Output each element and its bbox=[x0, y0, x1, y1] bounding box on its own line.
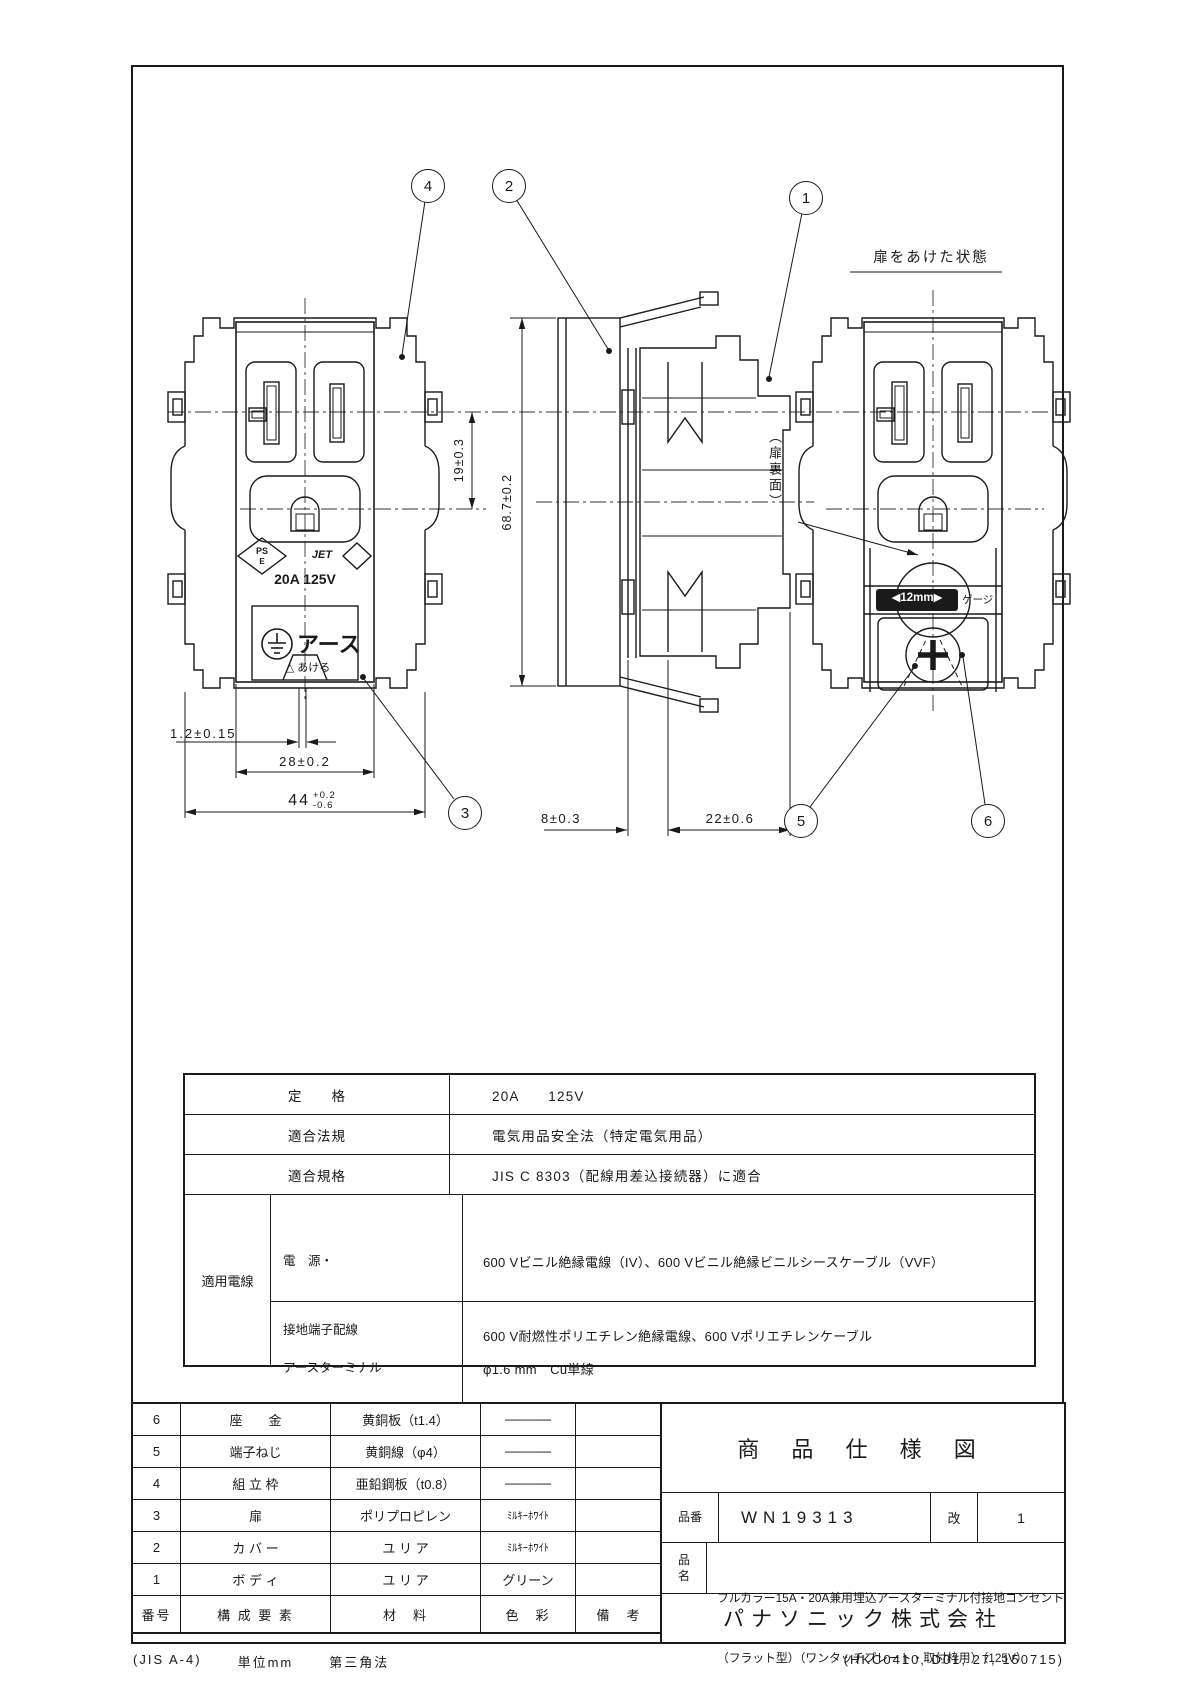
parts-cell-material: ポリプロピレン bbox=[331, 1500, 481, 1532]
callout-1: 1 bbox=[789, 181, 823, 215]
gauge-strip-label: ◀12mm▶ bbox=[876, 592, 958, 605]
door-back-label: （扉裏面） bbox=[766, 430, 781, 552]
parts-cell-component: 座 金 bbox=[181, 1404, 331, 1436]
ps-mark-label: PS bbox=[247, 546, 277, 556]
earth-door-label: アース bbox=[297, 632, 359, 657]
product-name-label: 品名 bbox=[662, 1543, 707, 1593]
callout-5-number: 5 bbox=[797, 813, 805, 830]
parts-cell-material: 亜鉛鋼板（t0.8） bbox=[331, 1468, 481, 1500]
earth-symbol-icon bbox=[262, 629, 292, 659]
parts-cell-material: ユ リ ア bbox=[331, 1564, 481, 1596]
jet-mark-label: JET bbox=[303, 549, 341, 562]
parts-cell-color: ───── bbox=[481, 1404, 576, 1436]
spec-value-standard: JIS C 8303（配線用差込接続器）に適合 bbox=[450, 1155, 1034, 1194]
door-back-leader bbox=[798, 522, 918, 555]
spec-value-rating: 20A 125V bbox=[450, 1075, 1034, 1114]
parts-cell-note bbox=[576, 1404, 662, 1436]
company-name: パナソニック株式会社 bbox=[662, 1594, 1064, 1642]
spec-wires-earth-label-line1: アースターミナル bbox=[283, 1357, 462, 1380]
parts-header-no: 番号 bbox=[133, 1596, 181, 1632]
dim-height: 68.7±0.2 bbox=[500, 455, 514, 549]
parts-cell-component: 扉 bbox=[181, 1500, 331, 1532]
footer-unit: 単位mm bbox=[238, 1652, 294, 1671]
gauge-label: ゲージ bbox=[962, 594, 1004, 606]
parts-cell-no: 2 bbox=[133, 1532, 181, 1564]
rating-marking: 20A 125V bbox=[254, 571, 356, 587]
parts-cell-no: 5 bbox=[133, 1436, 181, 1468]
open-door-view-title: 扉をあけた状態 bbox=[853, 250, 1009, 267]
document-title: 商 品 仕 様 図 bbox=[662, 1404, 1064, 1493]
parts-cell-material: ユ リ ア bbox=[331, 1532, 481, 1564]
dim-frame-width-tolerance: +0.2 -0.6 bbox=[313, 791, 336, 812]
parts-cell-note bbox=[576, 1564, 662, 1596]
dim-body-depth: 22±0.6 bbox=[683, 812, 777, 827]
revision-value: 1 bbox=[978, 1493, 1064, 1542]
parts-cell-note bbox=[576, 1500, 662, 1532]
door-open-hint: △ あける bbox=[272, 662, 344, 675]
parts-cell-color: ───── bbox=[481, 1468, 576, 1500]
callout-leaders bbox=[361, 199, 986, 807]
parts-cell-material: 黄銅板（t1.4） bbox=[331, 1404, 481, 1436]
callout-6: 6 bbox=[971, 804, 1005, 838]
spec-table: 定 格 20A 125V 適合法規 電気用品安全法（特定電気用品） 適合規格 J… bbox=[183, 1073, 1036, 1367]
parts-cell-no: 1 bbox=[133, 1564, 181, 1596]
e-mark-label: E bbox=[252, 557, 272, 566]
parts-cell-component: カ バ ー bbox=[181, 1532, 331, 1564]
spec-label-rating: 定 格 bbox=[185, 1075, 450, 1114]
dim-slot-to-ground: 19±0.3 bbox=[452, 420, 466, 500]
footer-projection: 第三角法 bbox=[329, 1652, 389, 1671]
parts-cell-note bbox=[576, 1468, 662, 1500]
callout-3-number: 3 bbox=[461, 805, 469, 822]
parts-cell-component: 組 立 枠 bbox=[181, 1468, 331, 1500]
spec-wires-power-label: 電 源・ 接地端子配線 bbox=[271, 1195, 463, 1301]
spec-label-law: 適合法規 bbox=[185, 1115, 450, 1154]
parts-header-note: 備 考 bbox=[576, 1596, 662, 1632]
callout-5: 5 bbox=[784, 804, 818, 838]
dim-frame-width: 44 +0.2 -0.6 bbox=[252, 791, 372, 812]
dim-door-offset: 1.2±0.15 bbox=[170, 727, 300, 742]
spec-row-standard: 適合規格 JIS C 8303（配線用差込接続器）に適合 bbox=[185, 1155, 1034, 1195]
spec-wires-column: 電 源・ 接地端子配線 600 Vビニル絶縁電線（IV）、600 Vビニル絶縁ビ… bbox=[271, 1195, 1034, 1365]
parts-cell-no: 4 bbox=[133, 1468, 181, 1500]
spec-wires-power-line: 600 Vビニル絶縁電線（IV）、600 Vビニル絶縁ビニルシースケーブル（VV… bbox=[483, 1251, 1034, 1276]
product-name-row: 品名 フルカラー15A・20A兼用埋込アースターミナル付接地コンセント （フラッ… bbox=[662, 1543, 1064, 1594]
part-number-value: WN19313 bbox=[719, 1493, 930, 1542]
part-number-row: 品番 WN19313 改 1 bbox=[662, 1493, 1064, 1543]
footer-document-code: (HKC0410, D01, 27, 150715) bbox=[844, 1652, 1064, 1667]
parts-cell-component: 端子ねじ bbox=[181, 1436, 331, 1468]
spec-wires-power-lines: 600 Vビニル絶縁電線（IV）、600 Vビニル絶縁ビニルシースケーブル（VV… bbox=[463, 1195, 1034, 1301]
drawing-sheet: 1 2 3 4 5 6 扉をあけた状態 （扉裏面） 19±0.3 68.7±0.… bbox=[0, 0, 1190, 1683]
callout-2: 2 bbox=[492, 169, 526, 203]
views-line-art bbox=[0, 0, 1190, 1010]
parts-cell-no: 6 bbox=[133, 1404, 181, 1436]
part-number-label: 品番 bbox=[662, 1493, 719, 1542]
dim-frame-width-value: 44 bbox=[288, 792, 310, 810]
title-block: 商 品 仕 様 図 品番 WN19313 改 1 品名 フルカラー15A・20A… bbox=[660, 1402, 1066, 1644]
callout-6-number: 6 bbox=[984, 813, 992, 830]
spec-wires-power: 電 源・ 接地端子配線 600 Vビニル絶縁電線（IV）、600 Vビニル絶縁ビ… bbox=[271, 1195, 1034, 1302]
parts-cell-color: ﾐﾙｷｰﾎﾜｲﾄ bbox=[481, 1500, 576, 1532]
spec-wires-power-label-line1: 電 源・ bbox=[283, 1250, 462, 1273]
callout-4: 4 bbox=[411, 169, 445, 203]
cert-diamond-icon bbox=[343, 543, 371, 569]
parts-cell-note bbox=[576, 1436, 662, 1468]
footer-left: (JIS A-4) 単位mm 第三角法 bbox=[133, 1652, 389, 1671]
spec-label-wires: 適用電線 bbox=[185, 1195, 271, 1365]
footer-sheet-size: (JIS A-4) bbox=[133, 1652, 202, 1671]
parts-cell-color: ﾐﾙｷｰﾎﾜｲﾄ bbox=[481, 1532, 576, 1564]
spec-wires-earth-line: φ1.6 mm Cu単線 bbox=[483, 1358, 1034, 1383]
parts-cell-color: ───── bbox=[481, 1436, 576, 1468]
parts-cell-note bbox=[576, 1532, 662, 1564]
spec-row-rating: 定 格 20A 125V bbox=[185, 1075, 1034, 1115]
parts-header-material: 材 料 bbox=[331, 1596, 481, 1632]
parts-cell-material: 黄銅線（φ4） bbox=[331, 1436, 481, 1468]
dim-opening-width: 28±0.2 bbox=[230, 755, 380, 770]
callout-2-number: 2 bbox=[505, 178, 513, 195]
callout-1-number: 1 bbox=[802, 190, 810, 207]
dim-frame-width-lower: -0.6 bbox=[313, 801, 336, 811]
parts-header-color: 色 彩 bbox=[481, 1596, 576, 1632]
spec-value-law: 電気用品安全法（特定電気用品） bbox=[450, 1115, 1034, 1154]
spec-row-wires: 適用電線 電 源・ 接地端子配線 600 Vビニル絶縁電線（IV）、600 Vビ… bbox=[185, 1195, 1034, 1365]
product-name-value: フルカラー15A・20A兼用埋込アースターミナル付接地コンセント （フラット型）… bbox=[707, 1543, 1064, 1593]
parts-cell-no: 3 bbox=[133, 1500, 181, 1532]
spec-label-standard: 適合規格 bbox=[185, 1155, 450, 1194]
parts-table: 6 座 金 黄銅板（t1.4） ───── 5 端子ねじ 黄銅線（φ4） ───… bbox=[131, 1402, 664, 1634]
parts-header-component: 構 成 要 素 bbox=[181, 1596, 331, 1632]
callout-3: 3 bbox=[448, 796, 482, 830]
revision-label: 改 bbox=[930, 1493, 978, 1542]
callout-4-number: 4 bbox=[424, 178, 432, 195]
company-row: パナソニック株式会社 bbox=[662, 1594, 1064, 1642]
dim-plate-depth: 8±0.3 bbox=[521, 812, 601, 827]
parts-cell-color: グリーン bbox=[481, 1564, 576, 1596]
parts-cell-component: ボ デ ィ bbox=[181, 1564, 331, 1596]
spec-row-law: 適合法規 電気用品安全法（特定電気用品） bbox=[185, 1115, 1034, 1155]
